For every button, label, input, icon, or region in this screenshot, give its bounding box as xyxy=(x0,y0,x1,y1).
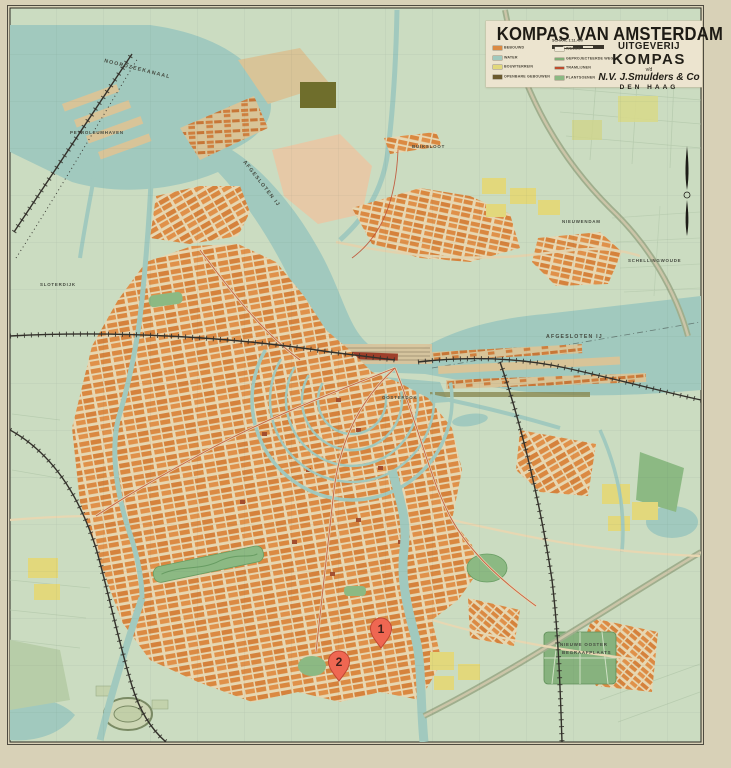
marker-1-label: 1 xyxy=(378,622,385,636)
legend-item-water: WATER xyxy=(493,56,549,61)
legend-label: PLANTSOENEN xyxy=(566,76,595,80)
map-sheet: NOORDZEEKANAAL AFGESLOTEN IJ AFGESLOTEN … xyxy=(0,0,731,768)
map-label-buiksloot: BUIKSLOOT xyxy=(412,144,445,149)
legend-label: BOUWTERREIN xyxy=(504,65,533,69)
map-label-nieuwendam: NIEUWENDAM xyxy=(562,219,601,224)
map-label-nieuwe-ooster: NIEUWE OOSTER xyxy=(560,642,608,647)
publisher-name: KOMPAS xyxy=(598,52,700,68)
map-label-afgesloten-ij-oost: AFGESLOTEN IJ xyxy=(546,334,603,340)
publisher-block: UITGEVERIJ KOMPAS v/d N.V. J.Smulders & … xyxy=(598,41,700,91)
map-label-oosterdok: OOSTERDOK xyxy=(382,395,418,400)
legend-swatch xyxy=(555,58,564,60)
legend-item-bouwterrein: BOUWTERREIN xyxy=(493,65,549,70)
map-label-begraafplaats: BEGRAAFPLAATS xyxy=(562,650,611,655)
legend-swatch xyxy=(493,46,502,50)
legend-swatch xyxy=(555,47,564,51)
marker-2-label: 2 xyxy=(336,655,343,669)
legend-label: OPENBARE GEBOUWEN xyxy=(504,75,550,79)
title-panel: KOMPAS VAN AMSTERDAM SCHAAL 1:11.400 BEB… xyxy=(486,21,702,87)
map-label-petroleumhaven: PETROLEUMHAVEN xyxy=(70,130,124,135)
map-canvas[interactable]: NOORDZEEKANAAL AFGESLOTEN IJ AFGESLOTEN … xyxy=(0,0,731,768)
legend-swatch xyxy=(555,67,564,69)
legend-label: BEBOUWD xyxy=(504,46,524,50)
publisher-firm: N.V. J.Smulders & Co xyxy=(598,73,700,84)
legend-label: TRAMLIJNEN xyxy=(566,66,591,70)
map-grid xyxy=(10,8,701,742)
legend: BEBOUWD WATER BOUWTERREIN OPENBARE GEBOU… xyxy=(493,46,611,80)
map-label-schellingwoude: SCHELLINGWOUDE xyxy=(628,258,681,263)
legend-item-bebouwd: BEBOUWD xyxy=(493,46,549,51)
legend-label: WEGEN xyxy=(566,47,581,51)
publisher-city: DEN HAAG xyxy=(598,85,700,92)
map-label-sloterdijk: SLOTERDIJK xyxy=(40,282,76,287)
legend-item-openbare-gebouwen: OPENBARE GEBOUWEN xyxy=(493,75,549,80)
scale-label: SCHAAL 1:11.400 xyxy=(552,39,590,43)
legend-swatch xyxy=(493,75,502,79)
legend-swatch xyxy=(555,76,564,80)
legend-label: WATER xyxy=(504,56,518,60)
legend-swatch xyxy=(493,56,502,60)
legend-swatch xyxy=(493,65,502,69)
publisher-line: UITGEVERIJ xyxy=(602,41,696,52)
